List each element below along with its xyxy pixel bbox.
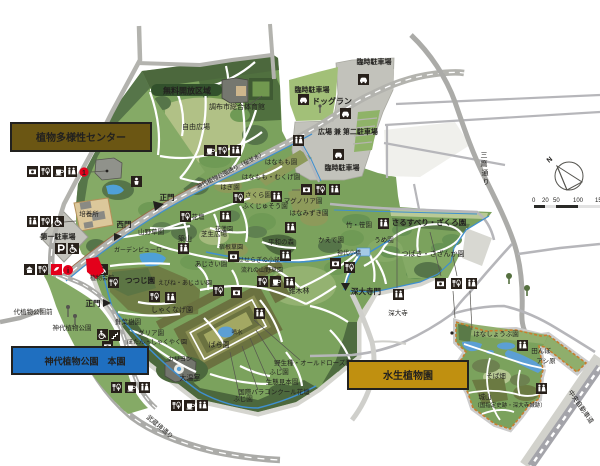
svg-text:アシ原: アシ原 <box>536 357 556 365</box>
svg-text:あじさい園: あじさい園 <box>195 260 228 268</box>
svg-text:かえで園: かえで園 <box>318 236 344 244</box>
svg-text:カリヨン: カリヨン <box>168 356 192 363</box>
svg-text:1: 1 <box>82 170 86 177</box>
svg-text:はなしょうぶ園: はなしょうぶ園 <box>473 330 519 338</box>
svg-text:うめ園: うめ園 <box>374 236 394 244</box>
svg-text:噴水: 噴水 <box>231 328 243 336</box>
svg-text:ぼたん・しゃくやく園: ぼたん・しゃくやく園 <box>127 338 187 346</box>
svg-text:植物多様性センター: 植物多様性センター <box>35 131 126 144</box>
svg-text:植物会館: 植物会館 <box>90 274 114 282</box>
svg-text:深大寺門: 深大寺門 <box>351 286 381 296</box>
svg-text:自由広場: 自由広場 <box>182 122 210 131</box>
svg-text:20: 20 <box>542 198 549 204</box>
svg-text:（国指定史跡・深大寺城跡）: （国指定史跡・深大寺城跡） <box>474 401 546 409</box>
svg-text:国際バラコンクール花壇: 国際バラコンクール花壇 <box>238 387 310 396</box>
svg-text:野生種・オールドローズ園: 野生種・オールドローズ園 <box>274 358 352 367</box>
svg-text:広場 兼 第二駐車場: 広場 兼 第二駐車場 <box>318 127 378 136</box>
svg-text:三: 三 <box>481 151 488 159</box>
svg-text:宿根草園: 宿根草園 <box>219 243 243 251</box>
svg-text:花壇: 花壇 <box>192 212 206 221</box>
svg-text:15: 15 <box>595 198 600 204</box>
svg-text:つばき・さざんか園: つばき・さざんか園 <box>402 249 465 258</box>
svg-text:はなみずき園: はなみずき園 <box>290 208 329 217</box>
svg-text:しゃくなげ園: しゃくなげ園 <box>151 305 193 314</box>
svg-text:ふじ園: ふじ園 <box>269 368 289 376</box>
svg-text:第一駐車場: 第一駐車場 <box>41 232 76 241</box>
svg-text:山野草園: 山野草園 <box>138 227 164 236</box>
svg-text:田んぼ: 田んぼ <box>531 347 551 355</box>
svg-text:さるすべり・ざくろ園: さるすべり・ざくろ園 <box>392 217 467 227</box>
svg-text:神代植物公園 本園: 神代植物公園 本園 <box>44 356 125 367</box>
svg-text:平和の森: 平和の森 <box>268 237 295 246</box>
svg-text:はなもも園: はなもも園 <box>265 158 298 166</box>
svg-text:ドッグラン: ドッグラン <box>312 96 352 106</box>
svg-text:培養所: 培養所 <box>79 209 99 218</box>
svg-text:i: i <box>67 266 69 275</box>
svg-text:深大寺: 深大寺 <box>388 308 408 317</box>
svg-text:はぎ園: はぎ園 <box>220 182 240 191</box>
svg-text:臨時駐車場: 臨時駐車場 <box>295 85 330 94</box>
svg-text:城山: 城山 <box>479 392 492 401</box>
svg-text:ダリア園: ダリア園 <box>138 328 164 337</box>
svg-text:ふくじゅそう園: ふくじゅそう園 <box>242 202 288 210</box>
svg-text:ガーデンビューロー: ガーデンビューロー <box>114 246 168 254</box>
svg-text:えびね・あじさい園: えびね・あじさい園 <box>158 279 212 287</box>
svg-text:臨時駐車場: 臨時駐車場 <box>357 57 392 66</box>
svg-text:大温室: 大温室 <box>180 373 201 382</box>
svg-text:築山: 築山 <box>178 234 192 243</box>
svg-text:西門: 西門 <box>117 220 132 229</box>
svg-text:調布市総合体育館: 調布市総合体育館 <box>209 102 265 111</box>
svg-text:つつじ園: つつじ園 <box>125 276 155 285</box>
svg-text:そば畑: そば畑 <box>486 371 506 380</box>
svg-text:生態見本園: 生態見本園 <box>266 377 299 386</box>
svg-text:針葉樹園: 針葉樹園 <box>115 317 141 326</box>
svg-text:水生植物園: 水生植物園 <box>382 369 433 382</box>
svg-text:神代植物公園: 神代植物公園 <box>53 323 92 332</box>
svg-text:せせらぎの小径: せせらぎの小径 <box>238 256 280 264</box>
svg-text:り: り <box>483 178 490 186</box>
svg-text:ばら園: ばら園 <box>209 340 230 349</box>
svg-text:神代小橋: 神代小橋 <box>337 249 361 257</box>
svg-text:50: 50 <box>553 198 560 204</box>
svg-text:芝生広場: 芝生広場 <box>201 229 228 238</box>
svg-text:無料開放区域: 無料開放区域 <box>163 86 211 96</box>
svg-text:代植物公園前: 代植物公園前 <box>14 307 54 316</box>
svg-text:ふじ園: ふじ園 <box>233 395 253 403</box>
svg-text:臨時駐車場: 臨時駐車場 <box>325 163 360 172</box>
svg-text:さくら園: さくら園 <box>245 191 271 199</box>
svg-text:竹・笹園: 竹・笹園 <box>346 220 372 229</box>
svg-text:鷹: 鷹 <box>481 159 488 168</box>
svg-text:はなもも・むくげ園: はなもも・むくげ園 <box>242 172 301 181</box>
svg-text:流れの山野草園: 流れの山野草園 <box>241 266 283 274</box>
svg-text:マグノリア園: マグノリア園 <box>284 196 323 205</box>
svg-text:通: 通 <box>482 168 489 177</box>
svg-text:正門: 正門 <box>86 299 101 308</box>
svg-text:正門: 正門 <box>160 193 175 202</box>
svg-text:100: 100 <box>573 198 584 204</box>
